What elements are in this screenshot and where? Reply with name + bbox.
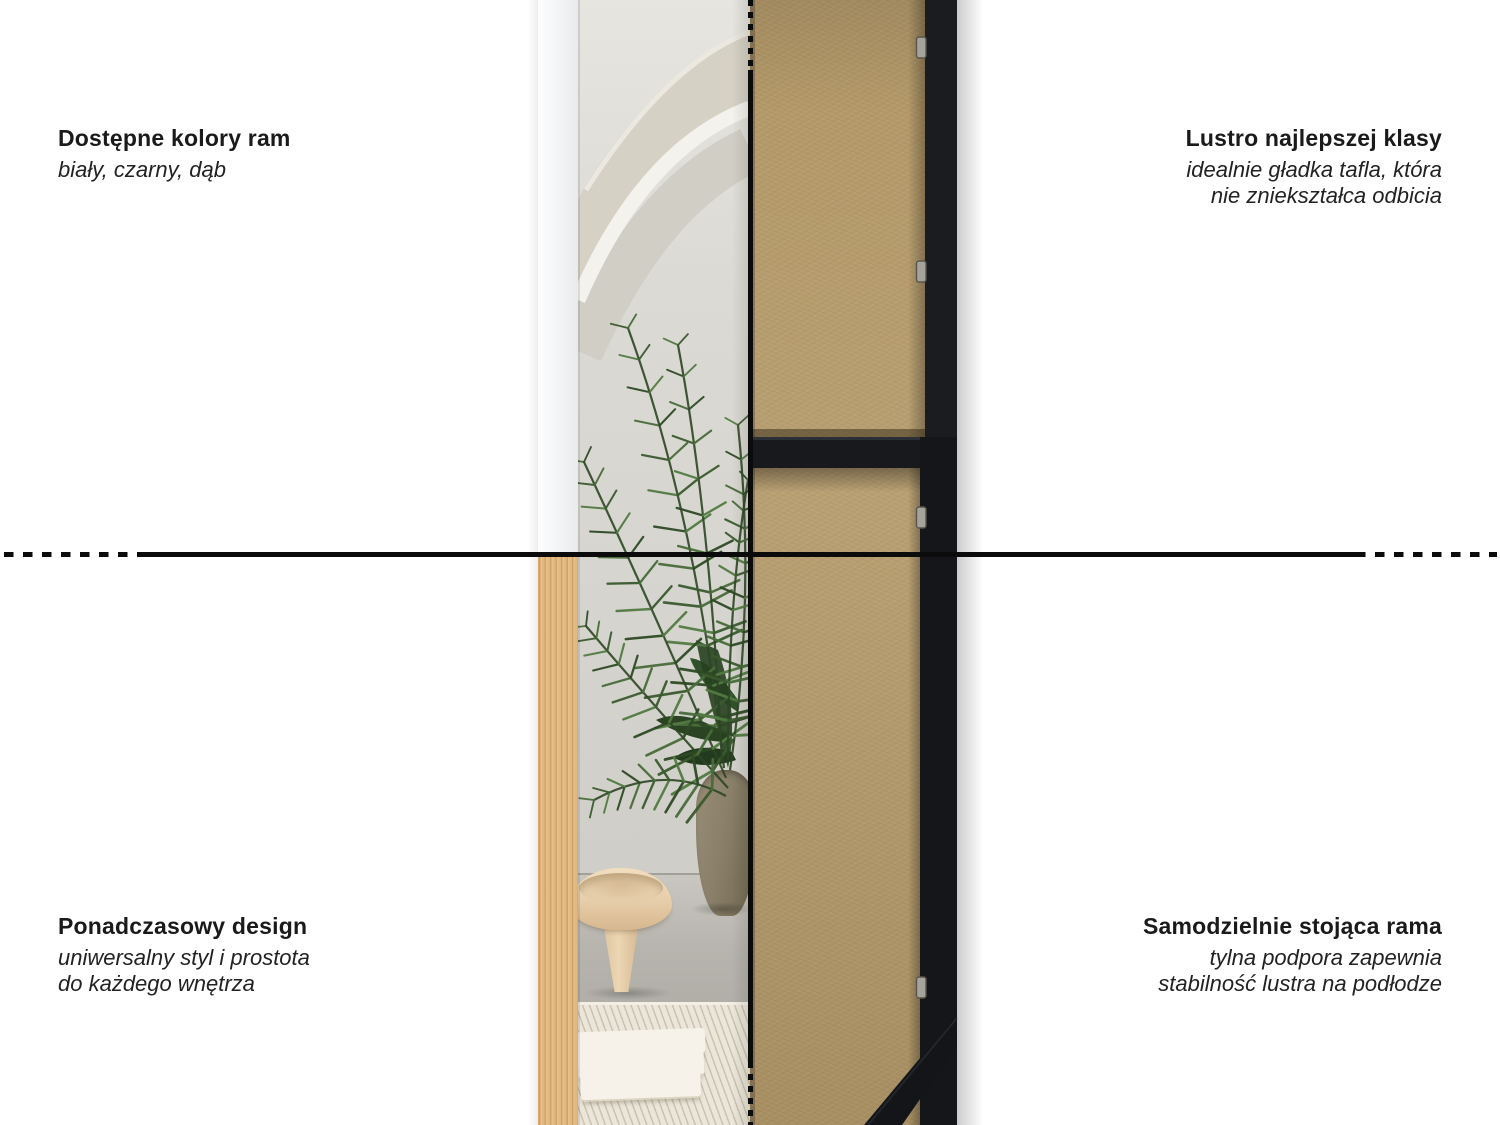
feature-subtitle: biały, czarny, dąb — [58, 157, 291, 183]
stool-bowl-recess — [579, 873, 663, 903]
feature-block-frame-colors: Dostępne kolory ram biały, czarny, dąb — [58, 123, 291, 183]
vertical-divider-dashed-bottom — [748, 1062, 753, 1125]
vertical-divider-solid — [748, 70, 753, 1062]
mirror-glass-reflection — [578, 0, 750, 1125]
photo-seam-shadow — [750, 429, 926, 437]
stand-bar-shadow — [750, 468, 920, 492]
feature-block-design: Ponadczasowy design uniwersalny styl i p… — [58, 911, 310, 997]
feature-title: Dostępne kolory ram — [58, 123, 291, 153]
product-infographic: Dostępne kolory ram biały, czarny, dąb L… — [0, 0, 1500, 1125]
feature-subtitle: tylna podpora zapewnia stabilność lustra… — [1143, 945, 1442, 997]
vertical-divider-dashed-top — [748, 0, 753, 70]
mdf-edge-shading — [908, 0, 925, 437]
black-frame-side-bar — [925, 0, 957, 437]
mirror-frame-oak — [538, 554, 581, 1125]
mirror-frame-white — [538, 0, 580, 554]
feature-subtitle: idealnie gładka tafla, która nie znieksz… — [1186, 157, 1442, 209]
photo-right-edge-shadow — [957, 0, 983, 1125]
feature-block-glass-quality: Lustro najlepszej klasy idealnie gładka … — [1186, 123, 1442, 209]
feature-title: Lustro najlepszej klasy — [1186, 123, 1442, 153]
feature-subtitle: uniwersalny styl i prostota do każdego w… — [58, 945, 310, 997]
palm-plant — [578, 0, 750, 1125]
stand-inner-shading — [908, 468, 920, 1125]
feature-title: Samodzielnie stojąca rama — [1143, 911, 1442, 941]
horizontal-divider-dashed-left — [4, 552, 145, 557]
photo-left-edge-shadow — [528, 0, 538, 1125]
black-frame-and-stand — [750, 0, 962, 1125]
feature-title: Ponadczasowy design — [58, 911, 310, 941]
mat — [580, 1070, 701, 1102]
feature-block-standing-frame: Samodzielnie stojąca rama tylna podpora … — [1143, 911, 1442, 997]
stacked-mats — [578, 1028, 711, 1103]
horizontal-divider-dashed-right — [1356, 552, 1497, 557]
